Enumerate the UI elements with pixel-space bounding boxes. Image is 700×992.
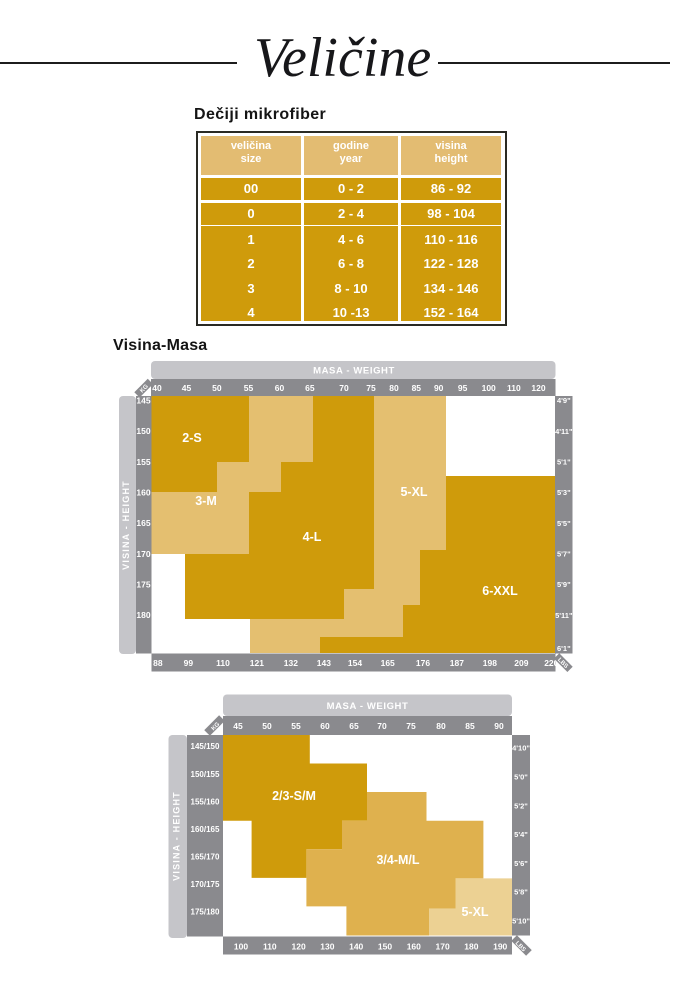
svg-text:60: 60 [320, 721, 330, 731]
svg-text:170: 170 [436, 942, 450, 952]
svg-text:5'2": 5'2" [514, 802, 528, 811]
svg-text:145/150: 145/150 [191, 742, 220, 751]
svg-text:160: 160 [136, 488, 150, 498]
svg-text:155/160: 155/160 [191, 798, 220, 807]
svg-text:5'3": 5'3" [557, 488, 571, 497]
svg-text:110: 110 [216, 658, 230, 668]
svg-text:85: 85 [465, 721, 475, 731]
svg-text:4-L: 4-L [303, 530, 322, 544]
svg-text:155: 155 [136, 457, 150, 467]
svg-text:140: 140 [349, 942, 363, 952]
svg-text:5'4": 5'4" [514, 830, 528, 839]
svg-text:65: 65 [305, 383, 315, 393]
svg-text:MASA - WEIGHT: MASA - WEIGHT [313, 366, 395, 377]
svg-text:190: 190 [493, 942, 507, 952]
svg-text:143: 143 [317, 658, 331, 668]
svg-text:150: 150 [378, 942, 392, 952]
svg-text:120: 120 [531, 383, 545, 393]
svg-text:130: 130 [320, 942, 334, 952]
svg-text:2/3-S/M: 2/3-S/M [272, 789, 316, 803]
svg-text:4'10": 4'10" [512, 744, 530, 753]
svg-text:3-M: 3-M [195, 494, 217, 508]
svg-text:45: 45 [233, 721, 243, 731]
svg-text:160: 160 [407, 942, 421, 952]
svg-text:154: 154 [348, 658, 362, 668]
svg-text:176: 176 [416, 658, 430, 668]
svg-text:4'9": 4'9" [557, 396, 571, 405]
svg-text:5'5": 5'5" [557, 519, 571, 528]
svg-text:80: 80 [389, 383, 399, 393]
svg-text:80: 80 [436, 721, 446, 731]
svg-text:5'1": 5'1" [557, 458, 571, 467]
svg-text:VISINA - HEIGHT: VISINA - HEIGHT [121, 480, 131, 570]
svg-text:5'11": 5'11" [555, 611, 573, 620]
svg-text:75: 75 [406, 721, 416, 731]
svg-text:100: 100 [234, 942, 248, 952]
svg-text:6'1": 6'1" [557, 644, 571, 653]
svg-text:5'8": 5'8" [514, 888, 528, 897]
svg-text:120: 120 [292, 942, 306, 952]
svg-text:100: 100 [482, 383, 496, 393]
svg-text:65: 65 [349, 721, 359, 731]
svg-text:50: 50 [262, 721, 272, 731]
svg-text:121: 121 [250, 658, 264, 668]
svg-text:165/170: 165/170 [191, 853, 220, 862]
svg-text:110: 110 [507, 383, 521, 393]
svg-text:5'9": 5'9" [557, 580, 571, 589]
svg-text:45: 45 [182, 383, 192, 393]
svg-text:175: 175 [136, 580, 150, 590]
svg-text:5'0": 5'0" [514, 773, 528, 782]
svg-text:165: 165 [136, 518, 150, 528]
svg-text:55: 55 [291, 721, 301, 731]
svg-text:150/155: 150/155 [191, 770, 220, 779]
svg-text:150: 150 [136, 426, 150, 436]
svg-text:85: 85 [412, 383, 422, 393]
svg-text:160/165: 160/165 [191, 825, 220, 834]
svg-text:110: 110 [263, 942, 277, 952]
svg-text:170: 170 [136, 549, 150, 559]
svg-text:3/4-M/L: 3/4-M/L [376, 853, 419, 867]
svg-text:70: 70 [377, 721, 387, 731]
svg-text:209: 209 [514, 658, 528, 668]
svg-text:50: 50 [212, 383, 222, 393]
svg-text:187: 187 [450, 658, 464, 668]
svg-text:175/180: 175/180 [191, 908, 220, 917]
svg-text:170/175: 170/175 [191, 880, 220, 889]
svg-text:5'6": 5'6" [514, 859, 528, 868]
svg-text:75: 75 [366, 383, 376, 393]
svg-text:165: 165 [381, 658, 395, 668]
svg-text:88: 88 [153, 658, 163, 668]
svg-text:90: 90 [434, 383, 444, 393]
svg-text:4'11": 4'11" [555, 427, 573, 436]
svg-text:198: 198 [483, 658, 497, 668]
svg-text:70: 70 [339, 383, 349, 393]
svg-text:5'10": 5'10" [512, 917, 530, 926]
svg-text:VISINA - HEIGHT: VISINA - HEIGHT [172, 791, 182, 881]
svg-text:95: 95 [458, 383, 468, 393]
svg-text:55: 55 [244, 383, 254, 393]
svg-text:99: 99 [184, 658, 194, 668]
svg-text:5-XL: 5-XL [461, 905, 488, 919]
svg-text:180: 180 [136, 610, 150, 620]
svg-text:40: 40 [152, 383, 162, 393]
svg-text:145: 145 [136, 396, 150, 406]
svg-text:180: 180 [464, 942, 478, 952]
svg-text:90: 90 [494, 721, 504, 731]
svg-text:2-S: 2-S [182, 431, 201, 445]
svg-text:5'7": 5'7" [557, 550, 571, 559]
svg-text:6-XXL: 6-XXL [482, 584, 518, 598]
svg-text:MASA - WEIGHT: MASA - WEIGHT [327, 701, 409, 712]
svg-text:60: 60 [275, 383, 285, 393]
svg-text:5-XL: 5-XL [400, 485, 427, 499]
svg-text:132: 132 [284, 658, 298, 668]
